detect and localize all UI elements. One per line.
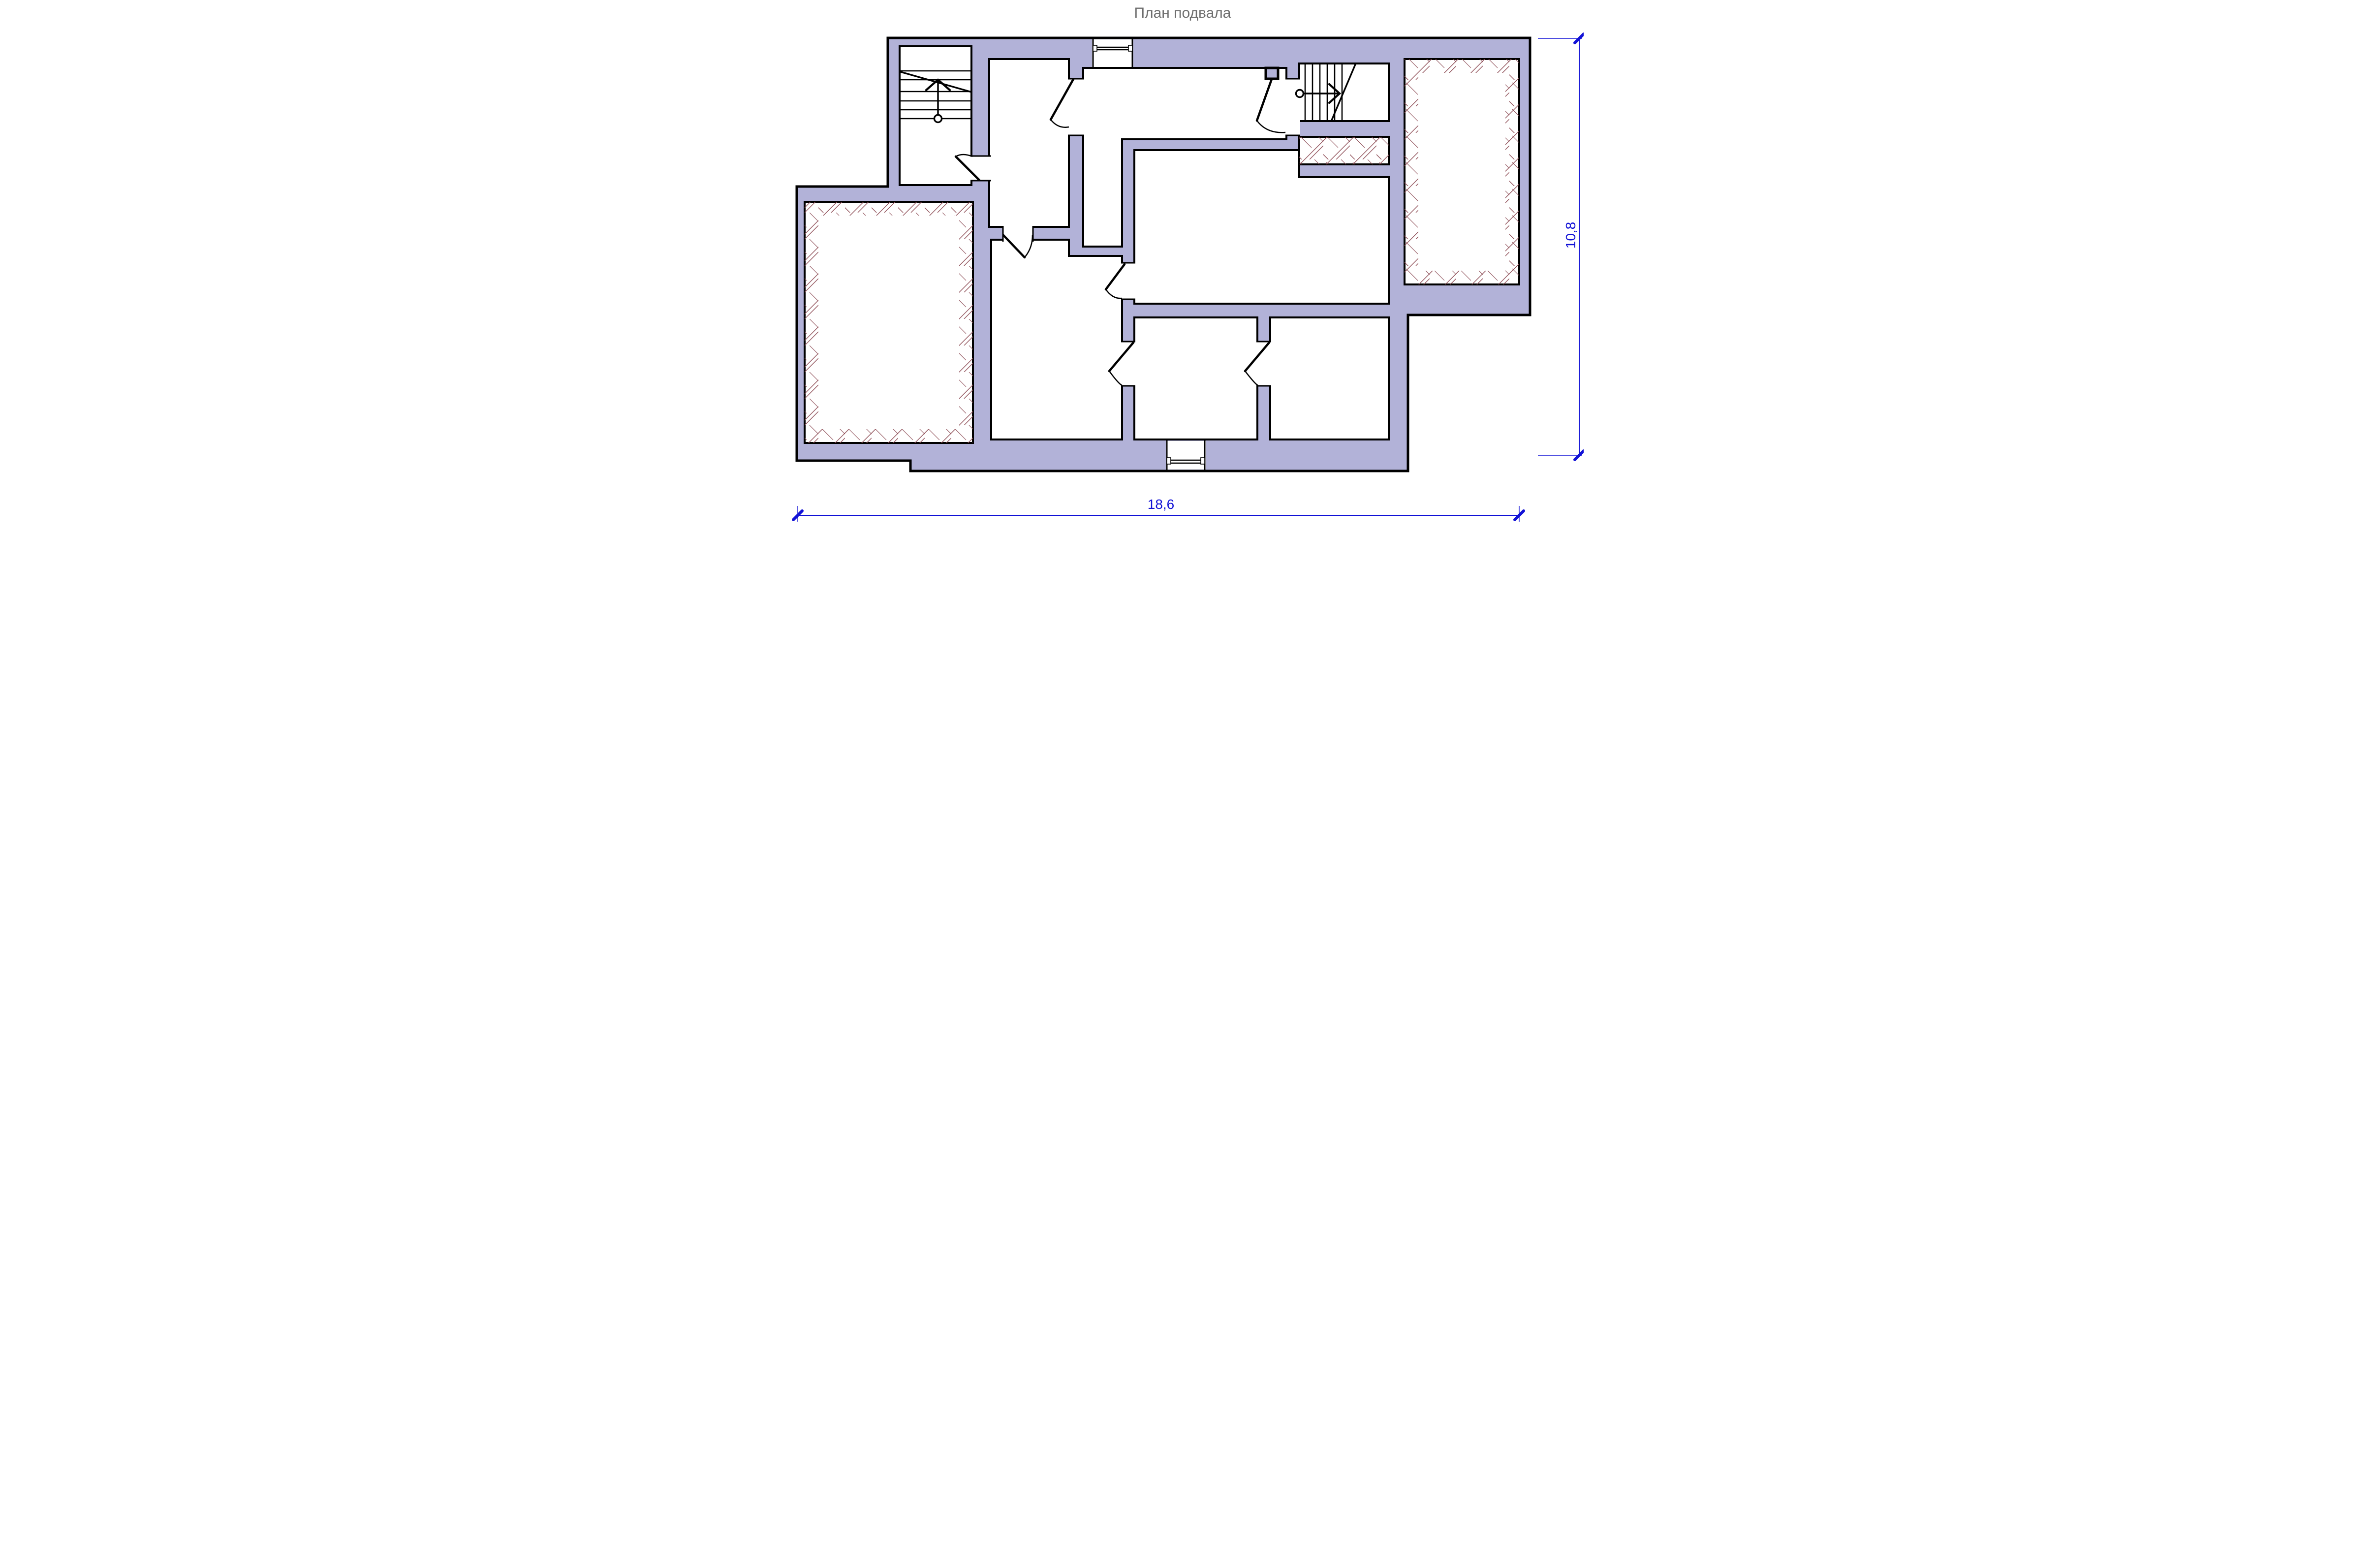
room-bottom-center bbox=[1134, 317, 1257, 439]
window-bottom bbox=[1166, 440, 1206, 470]
stairs-left-start-circle bbox=[934, 115, 941, 123]
room-cellar-left bbox=[805, 202, 973, 443]
room-bottom-left bbox=[991, 240, 1122, 439]
door-hinge-nib bbox=[1266, 68, 1278, 79]
dimension-bottom: 18,6 bbox=[793, 497, 1524, 522]
stairs-right-start-circle bbox=[1296, 90, 1303, 97]
hatch-duct-strip bbox=[1299, 137, 1389, 164]
floor-plan-page: 18,6 10,8 План подвала bbox=[792, 0, 1584, 523]
room-vestibule bbox=[989, 59, 1069, 227]
dimension-right: 10,8 bbox=[1538, 34, 1584, 460]
room-bottom-right bbox=[1270, 317, 1389, 439]
dimension-width-label: 18,6 bbox=[1147, 497, 1174, 512]
page-title: План подвала bbox=[1134, 5, 1231, 21]
window-top bbox=[1092, 38, 1133, 67]
dimension-height-label: 10,8 bbox=[1563, 222, 1578, 249]
room-cellar-right bbox=[1405, 59, 1519, 284]
floor-plan-canvas: 18,6 10,8 План подвала bbox=[792, 0, 1584, 523]
